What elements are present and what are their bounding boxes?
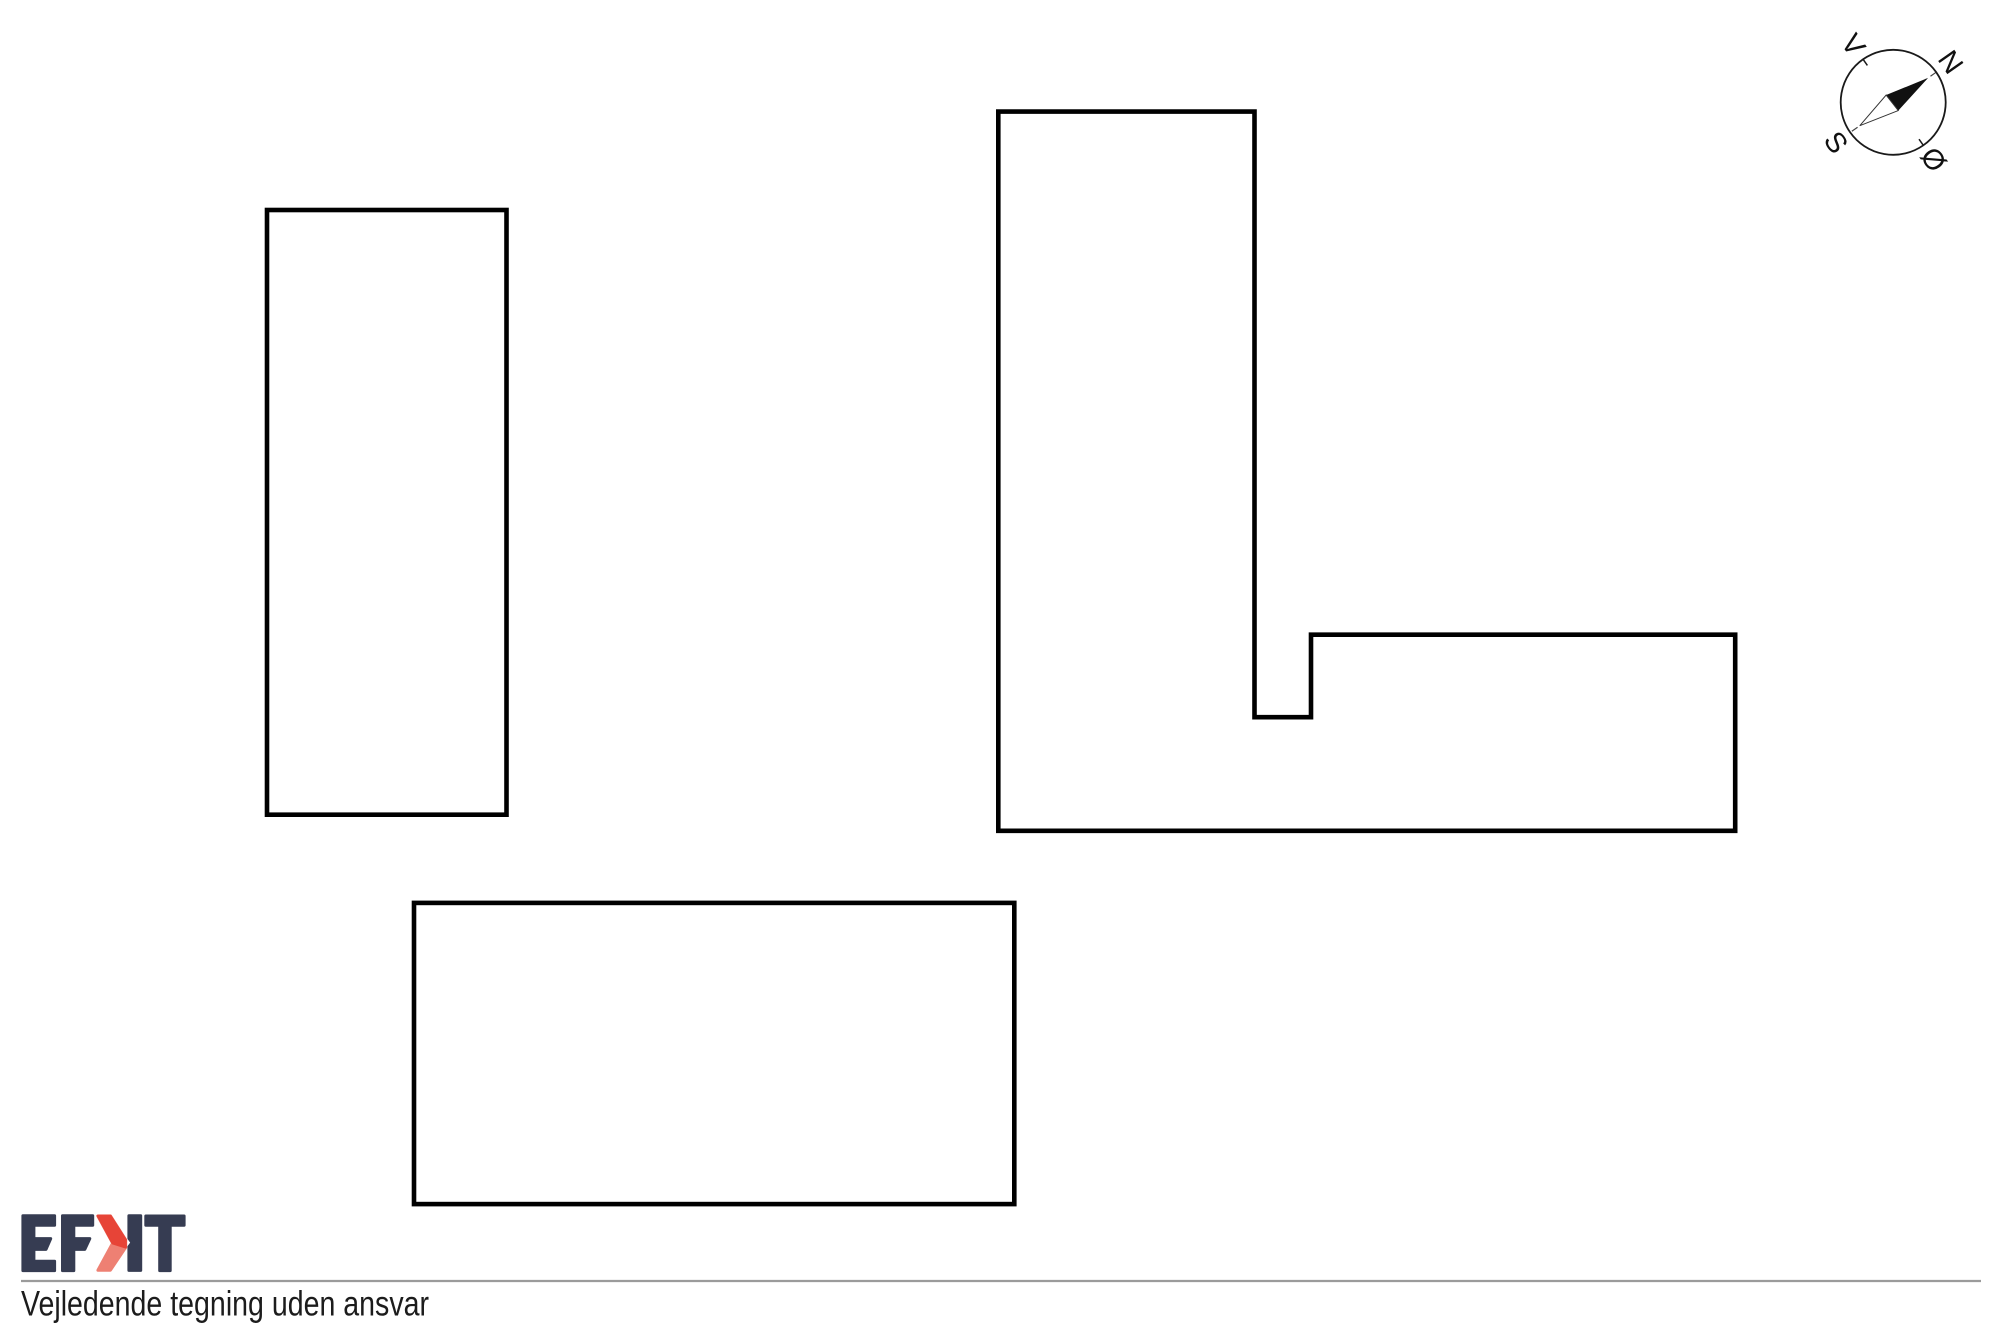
svg-text:Vejledende tegning uden ansvar: Vejledende tegning uden ansvar — [21, 1284, 429, 1324]
